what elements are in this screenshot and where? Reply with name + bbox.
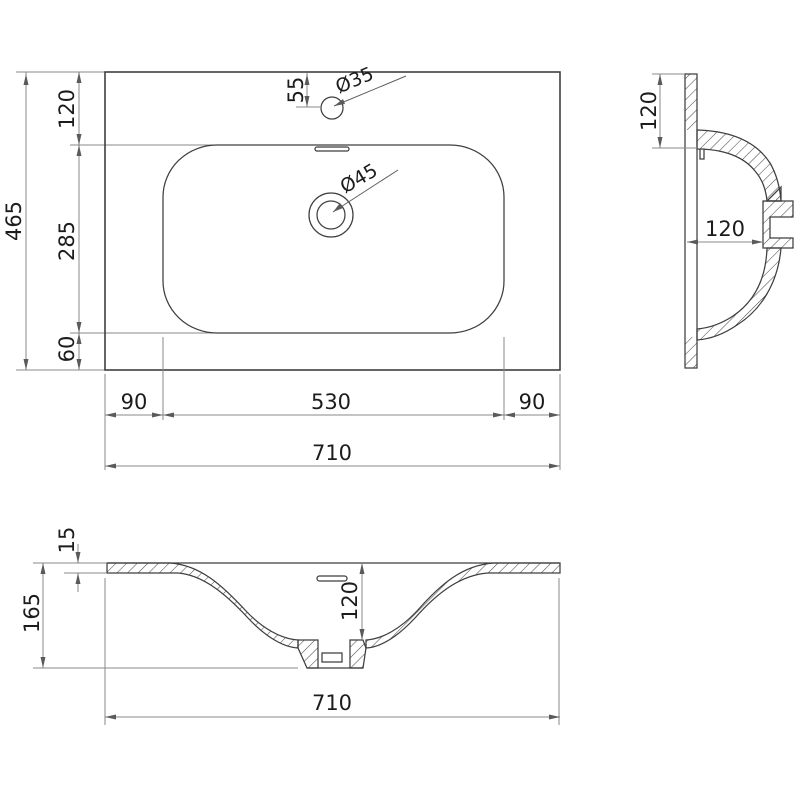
drain-wall-right [350,640,366,668]
dim-width-left: 90 [121,390,148,414]
dim-depth-basin: 285 [55,221,79,261]
technical-drawing-canvas: 465 120 285 60 55 Ø35 Ø45 90 530 90 710 … [0,0,800,800]
drain-wall-left [298,640,318,668]
side-view: 120 120 [637,74,793,368]
dim-deck-thickness: 15 [55,527,79,554]
dim-width-total: 710 [312,441,352,465]
drain-outlet-hole [322,653,342,662]
top-view: 465 120 285 60 55 Ø35 Ø45 90 530 90 710 [2,63,560,470]
dim-faucet-diameter: Ø35 [332,63,377,99]
deck-bowl-right [366,563,560,648]
dim-height-total: 165 [20,593,44,633]
dim-faucet-offset: 55 [284,77,308,104]
overflow-notch [700,149,704,159]
faucet-hole [321,97,343,119]
washbasin-drawing: 465 120 285 60 55 Ø35 Ø45 90 530 90 710 … [0,0,800,800]
front-view: 15 165 120 710 [20,527,560,725]
dim-width-basin: 530 [311,390,351,414]
deck-bowl-left [107,563,298,648]
dim-width-total-front: 710 [312,691,352,715]
basin-outline [163,145,504,333]
drain-fitting [763,201,793,248]
deck-hatch-top [685,74,697,130]
dim-basin-depth-front: 120 [338,581,362,621]
dim-basin-depth-side: 120 [705,217,745,241]
dim-back-to-basin: 120 [637,91,661,131]
bowl-wall-upper [697,130,781,201]
dim-drain-diameter: Ø45 [337,159,382,198]
drain-recess [309,193,353,237]
dim-width-right: 90 [519,390,546,414]
deck-outline [105,72,560,370]
overflow-slot-section [317,576,347,581]
dim-depth-total: 465 [2,201,26,241]
bowl-wall-lower [697,248,781,340]
dim-depth-bottom: 60 [55,336,79,363]
deck-hatch-bottom [685,337,697,368]
overflow-slot-plan [315,147,349,151]
dim-depth-top: 120 [55,89,79,129]
